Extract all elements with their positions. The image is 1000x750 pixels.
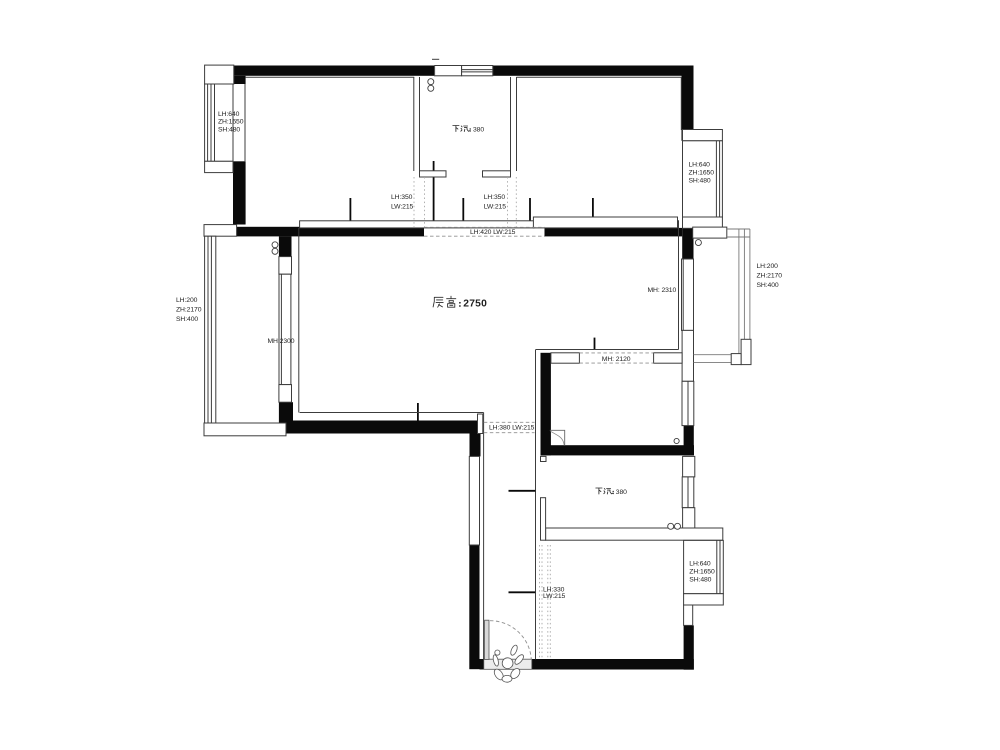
svg-text:LH:350: LH:350 xyxy=(391,194,413,201)
svg-text:LH:640: LH:640 xyxy=(689,561,711,568)
svg-text:LH:640: LH:640 xyxy=(689,161,711,168)
svg-text:2750: 2750 xyxy=(463,299,487,310)
svg-text:LH:640: LH:640 xyxy=(218,111,240,118)
svg-text:SH:480: SH:480 xyxy=(218,126,240,133)
svg-text:MH: 2120: MH: 2120 xyxy=(602,356,631,363)
svg-text:380: 380 xyxy=(616,489,627,496)
svg-text:LH:200: LH:200 xyxy=(176,297,198,304)
svg-text:ZH:1650: ZH:1650 xyxy=(689,169,715,176)
svg-text:SH:400: SH:400 xyxy=(757,282,779,289)
svg-text:ZH:1650: ZH:1650 xyxy=(689,569,715,576)
svg-text:LW:215: LW:215 xyxy=(484,204,507,211)
svg-text:ZH:2170: ZH:2170 xyxy=(176,307,202,314)
svg-text:LW:215: LW:215 xyxy=(543,593,566,600)
svg-text:LH:380 LW:215: LH:380 LW:215 xyxy=(489,425,535,432)
svg-text:SH:480: SH:480 xyxy=(689,576,711,583)
svg-text:SH:480: SH:480 xyxy=(689,177,711,184)
svg-text:LH:420 LW:215: LH:420 LW:215 xyxy=(470,229,516,236)
svg-text:ZH:1650: ZH:1650 xyxy=(218,119,244,126)
svg-text:MH:2300: MH:2300 xyxy=(268,338,295,345)
svg-text:MH: 2310: MH: 2310 xyxy=(648,287,677,294)
svg-text:LH:200: LH:200 xyxy=(757,263,779,270)
svg-text:380: 380 xyxy=(473,126,484,133)
svg-text:LH:350: LH:350 xyxy=(484,194,506,201)
svg-text:ZH:2170: ZH:2170 xyxy=(757,273,783,280)
svg-text:SH:400: SH:400 xyxy=(176,316,198,323)
svg-text:LW:215: LW:215 xyxy=(391,204,414,211)
